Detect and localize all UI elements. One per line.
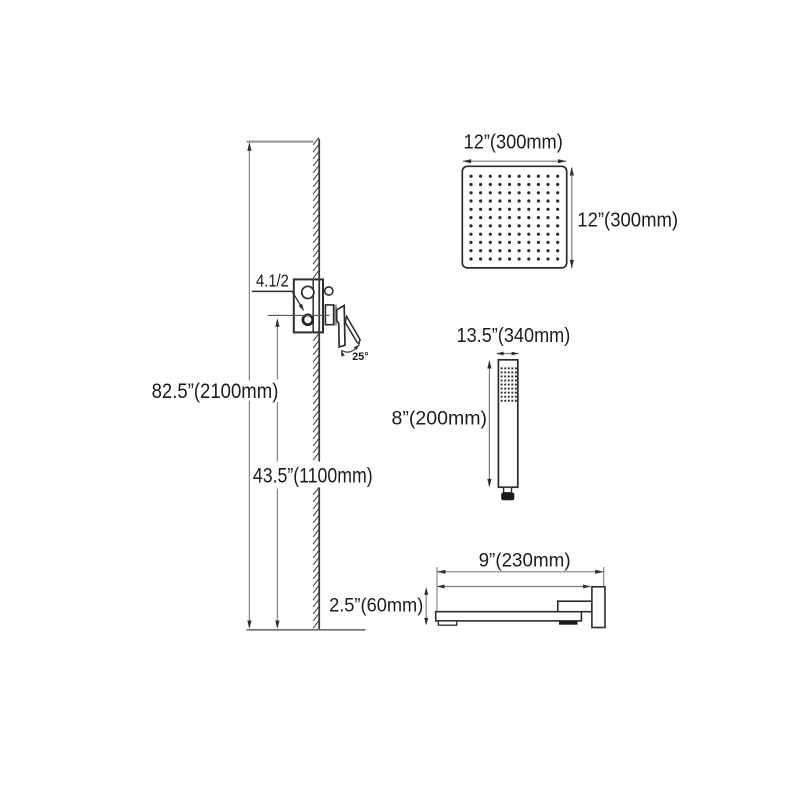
svg-text:13.5”(340mm): 13.5”(340mm) [457,325,571,347]
svg-text:82.5”(2100mm): 82.5”(2100mm) [152,380,279,403]
svg-text:2.5”(60mm): 2.5”(60mm) [329,595,423,616]
svg-text:9”(230mm): 9”(230mm) [479,550,571,572]
svg-text:8”(200mm): 8”(200mm) [392,408,488,430]
svg-text:12”(300mm): 12”(300mm) [464,132,563,154]
svg-text:4.1/2: 4.1/2 [256,271,289,291]
svg-text:25°: 25° [352,351,368,363]
svg-text:43.5”(1100mm): 43.5”(1100mm) [253,465,373,488]
svg-text:12”(300mm): 12”(300mm) [577,210,678,232]
